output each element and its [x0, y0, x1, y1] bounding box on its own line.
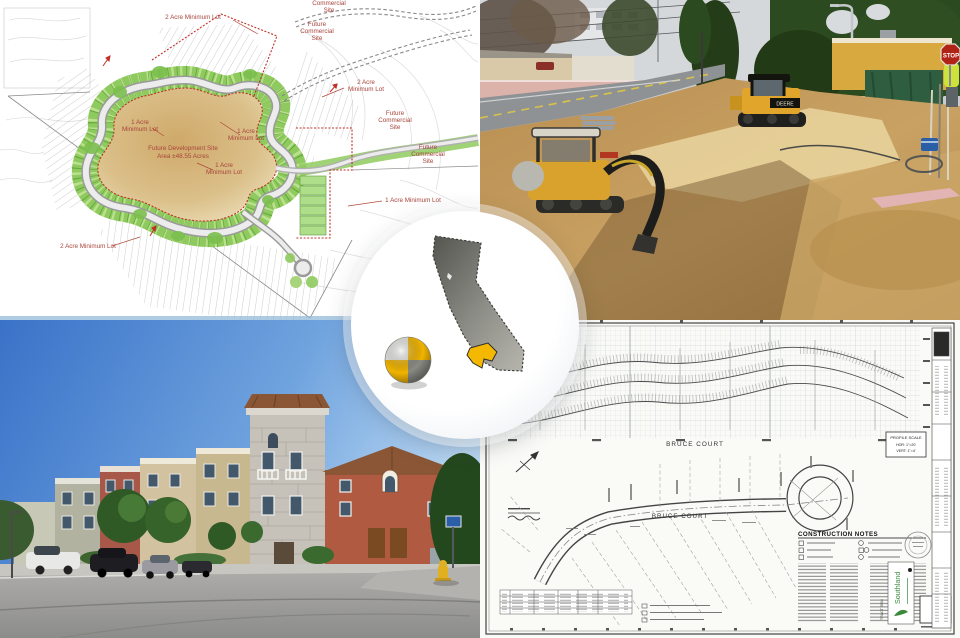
survey-target-sphere-icon	[385, 337, 431, 390]
label-2acre-right-1: 2 Acre	[357, 79, 375, 86]
label-2acre-right-2: Minimum Lot	[348, 86, 384, 93]
stop-sign-text: STOP	[943, 54, 959, 60]
label-1acre-left-1: 1 Acre	[131, 119, 149, 126]
label-ne-commercial-3: Site	[312, 35, 323, 42]
label-ne-commercial-1: Future	[308, 21, 327, 28]
profile-scale-vert: VERT: 1"=4'	[896, 449, 915, 453]
label-1acre-se: 1 Acre Minimum Lot	[385, 197, 441, 204]
label-1acre-center-b2: Minimum Lot	[206, 169, 242, 176]
profile-scale-hor: HOR: 1"=20'	[896, 443, 916, 447]
blue-street-sign	[446, 516, 461, 527]
label-mid-commercial-1: Future	[386, 110, 405, 117]
collage-root: 2 Acre Minimum Lot Commercial Site Futur…	[0, 0, 960, 638]
label-2acre-top: 2 Acre Minimum Lot	[165, 14, 221, 21]
plan-street-name: BRUCE COURT	[652, 513, 708, 520]
label-commercial-cut-2: Site	[324, 7, 335, 14]
label-ne-commercial-2: Commercial	[300, 28, 334, 35]
label-2acre-bottom: 2 Acre Minimum Lot	[60, 243, 116, 250]
badge-graphic	[351, 211, 579, 439]
label-1acre-center-b1: 1 Acre	[215, 162, 233, 169]
profile-scale-title: PROFILE SCALE	[890, 435, 922, 440]
tract-label: TRACT 5504	[880, 599, 884, 620]
street-surface	[0, 564, 480, 638]
profile-scale-box: PROFILE SCALE HOR: 1"=20' VERT: 1"=4'	[886, 432, 926, 457]
california-location-badge	[351, 211, 579, 439]
title-block-strip	[932, 328, 951, 628]
parked-red-car	[536, 62, 554, 70]
label-dev-site-2: Area ±48.55 Acres	[157, 153, 209, 160]
california-state-icon	[433, 236, 524, 371]
label-low-commercial-3: Site	[423, 158, 434, 165]
profile-street-name: BRUCE COURT	[666, 441, 724, 448]
label-low-commercial-1: Future	[419, 144, 438, 151]
label-mid-commercial-2: Commercial	[378, 117, 412, 124]
curve-data-table	[500, 590, 632, 614]
title-logo	[934, 332, 949, 356]
company-block: Southland	[888, 562, 914, 624]
label-dev-site-1: Future Development Site	[148, 145, 218, 152]
label-commercial-cut-1: Commercial	[312, 0, 346, 7]
cooler	[921, 138, 938, 151]
construction-notes-title: CONSTRUCTION NOTES	[798, 531, 878, 538]
loader-brand-label: DEERE	[776, 102, 794, 108]
label-low-commercial-2: Commercial	[411, 151, 445, 158]
label-1acre-left-2: Minimum Lot	[122, 126, 158, 133]
label-1acre-center-a1: 1 Acre	[237, 128, 255, 135]
label-1acre-center-a2: Minimum Lot	[228, 135, 264, 142]
label-mid-commercial-3: Site	[390, 124, 401, 131]
company-name: Southland	[893, 572, 902, 604]
